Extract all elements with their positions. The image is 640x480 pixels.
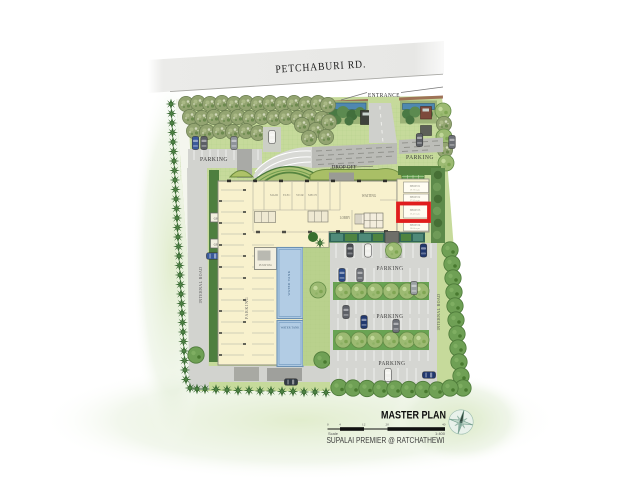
svg-text:WATER TANK: WATER TANK — [281, 326, 301, 330]
svg-text:WAITING: WAITING — [362, 193, 377, 198]
svg-text:SHOP 02: SHOP 02 — [410, 196, 421, 199]
svg-text:29.78 sq.m.: 29.78 sq.m. — [410, 189, 421, 192]
svg-text:WATER TANK: WATER TANK — [287, 270, 291, 295]
svg-text:PARKING: PARKING — [377, 313, 404, 320]
svg-text:SHOP 04: SHOP 04 — [410, 224, 421, 227]
svg-text:PARKING: PARKING — [406, 154, 434, 161]
svg-text:SHOP 03: SHOP 03 — [410, 209, 421, 212]
svg-text:ENTRANCE: ENTRANCE — [368, 93, 400, 99]
svg-text:PARKING: PARKING — [379, 360, 406, 367]
svg-text:INTERNAL ROAD: INTERNAL ROAD — [437, 293, 441, 330]
svg-text:0: 0 — [327, 423, 329, 427]
svg-text:PARKING: PARKING — [200, 156, 228, 163]
svg-text:MECH: MECH — [308, 193, 318, 197]
svg-text:PARKING: PARKING — [377, 265, 404, 272]
svg-text:PUMP RM.: PUMP RM. — [259, 264, 273, 267]
svg-text:27.50 sq.m.: 27.50 sq.m. — [410, 199, 421, 202]
svg-text:SUPALAI PREMIER @ RATCHATHEWI: SUPALAI PREMIER @ RATCHATHEWI — [327, 436, 445, 445]
svg-text:PARKING: PARKING — [244, 297, 249, 319]
svg-text:LOBBY: LOBBY — [340, 215, 351, 220]
svg-text:12: 12 — [362, 423, 366, 427]
svg-text:STOR: STOR — [296, 193, 304, 197]
svg-text:INTERNAL ROAD: INTERNAL ROAD — [199, 266, 203, 303]
svg-text:MAID: MAID — [270, 193, 279, 197]
svg-text:40: 40 — [442, 423, 446, 427]
svg-text:30.42 sq.m.: 30.42 sq.m. — [410, 213, 421, 216]
svg-text:MASTER PLAN: MASTER PLAN — [381, 410, 446, 422]
svg-text:ELEC: ELEC — [283, 193, 291, 197]
svg-text:SHOP 01: SHOP 01 — [410, 185, 421, 188]
svg-text:28.64 sq.m.: 28.64 sq.m. — [410, 227, 421, 230]
svg-text:4: 4 — [339, 423, 341, 427]
svg-text:20: 20 — [386, 423, 390, 427]
